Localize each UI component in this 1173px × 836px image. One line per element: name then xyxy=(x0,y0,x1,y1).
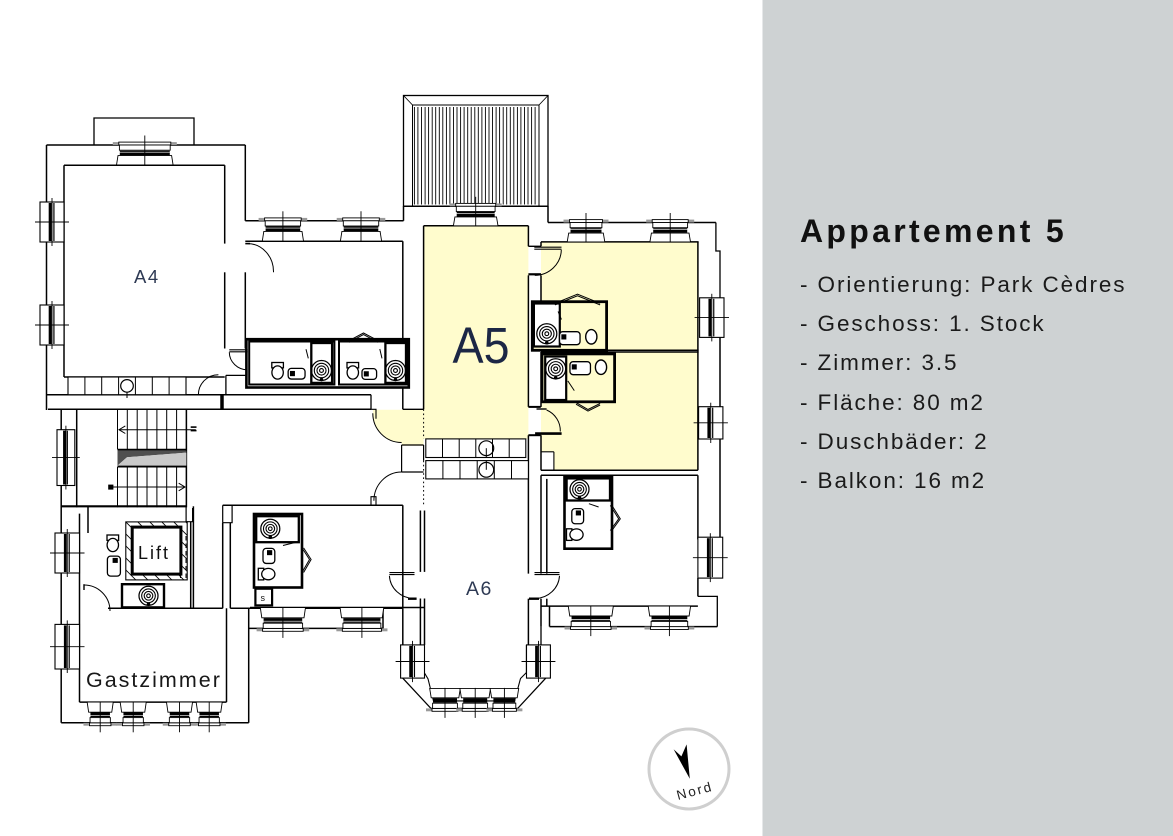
svg-text:- Orientierung: Park Cèdres: - Orientierung: Park Cèdres xyxy=(800,272,1126,297)
svg-text:- Zimmer: 3.5: - Zimmer: 3.5 xyxy=(800,350,958,375)
svg-text:- Fläche: 80 m2: - Fläche: 80 m2 xyxy=(800,390,985,415)
svg-text:A6: A6 xyxy=(466,578,493,600)
svg-text:A4: A4 xyxy=(134,266,160,287)
svg-text:A5: A5 xyxy=(453,317,510,374)
svg-text:s: s xyxy=(261,593,266,603)
svg-text:Appartement 5: Appartement 5 xyxy=(800,213,1067,249)
svg-text:Gastzimmer: Gastzimmer xyxy=(86,668,222,692)
svg-text:Lift: Lift xyxy=(138,543,170,563)
svg-text:- Duschbäder: 2: - Duschbäder: 2 xyxy=(800,429,989,454)
svg-text:- Geschoss: 1. Stock: - Geschoss: 1. Stock xyxy=(800,311,1046,336)
svg-text:- Balkon: 16 m2: - Balkon: 16 m2 xyxy=(800,468,986,493)
